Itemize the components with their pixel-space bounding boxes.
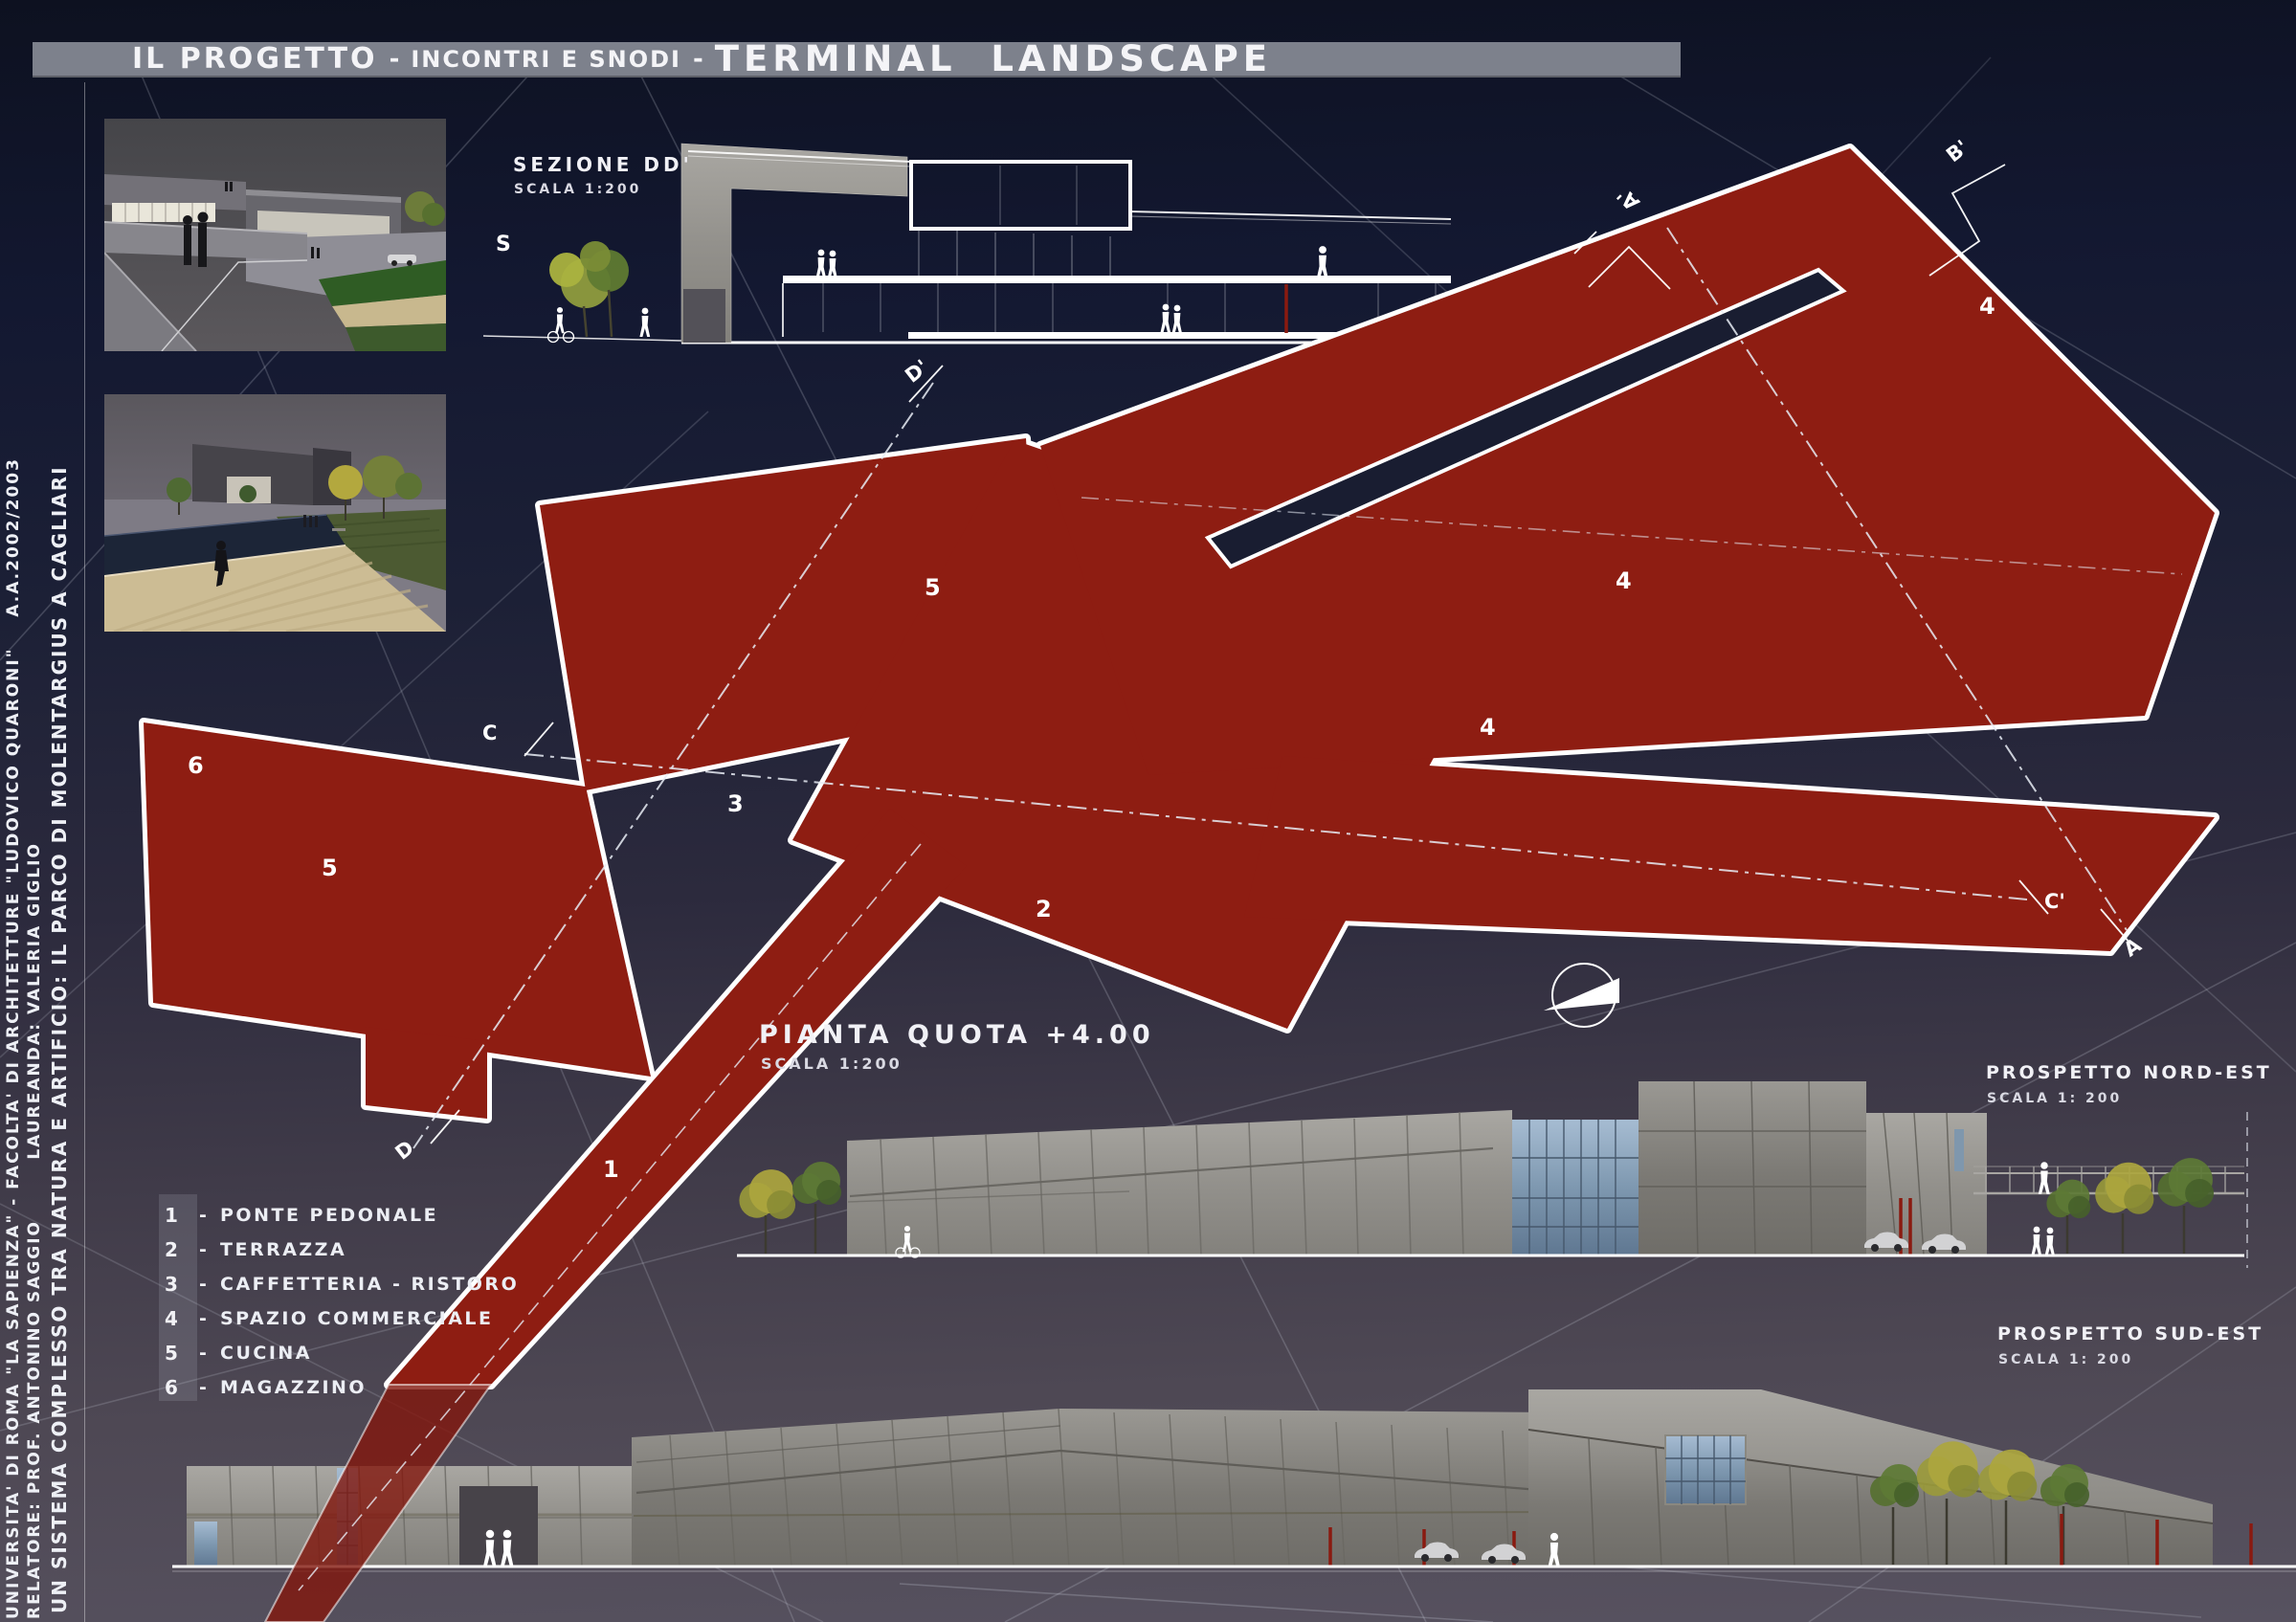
label-pianta-title: PIANTA QUOTA +4.00 <box>759 1020 1155 1050</box>
title-separator-1: - <box>390 45 400 74</box>
label-prospetto-sud-est-title: PROSPETTO SUD-EST <box>1997 1323 2263 1344</box>
plan-number-cucina-2: 5 <box>925 574 942 601</box>
legend-item-spazio-commerciale: 4 - SPAZIO COMMERCIALE <box>165 1301 519 1336</box>
plan-number-cucina-1: 5 <box>322 855 339 881</box>
north-arrow-icon <box>1544 964 1619 1027</box>
credit-thesis-title: UN SISTEMA COMPLESSO TRA NATURA E ARTIFI… <box>48 465 71 1613</box>
legend-item-magazzino: 6 - MAGAZZINO <box>165 1370 519 1405</box>
legend: 1 - PONTE PEDONALE 2 - TERRAZZA 3 - CAFF… <box>165 1198 519 1405</box>
presentation-board: IL PROGETTO - INCONTRI E SNODI - TERMINA… <box>0 0 2296 1622</box>
title-part-incontri: INCONTRI E SNODI <box>411 46 681 73</box>
title-part-progetto: IL PROGETTO <box>132 42 378 76</box>
credits-divider-line <box>84 82 85 1622</box>
legend-item-caffetteria: 3 - CAFFETTERIA - RISTORO <box>165 1267 519 1301</box>
plan-number-caffetteria: 3 <box>727 790 745 817</box>
plan-number-terrazza: 2 <box>1036 896 1053 922</box>
plan-number-magazzino: 6 <box>188 752 205 779</box>
label-prospetto-nord-est-title: PROSPETTO NORD-EST <box>1986 1062 2272 1083</box>
title-part-terminal-landscape: TERMINAL LANDSCAPE <box>715 38 1272 79</box>
plan-number-commerciale-3: 4 <box>1480 714 1497 741</box>
plan-number-commerciale-2: 4 <box>1616 567 1633 594</box>
label-prospetto-nord-est-scale: SCALA 1: 200 <box>1987 1091 2122 1106</box>
section-marker-s: S <box>496 233 511 256</box>
title-separator-2: - <box>693 45 703 74</box>
plan-number-ponte: 1 <box>603 1156 620 1183</box>
legend-item-terrazza: 2 - TERRAZZA <box>165 1233 519 1267</box>
section-marker-c: C <box>482 722 497 744</box>
credit-university: UNIVERSITA' DI ROMA "LA SAPIENZA" - FACO… <box>4 457 23 1619</box>
label-prospetto-sud-est-scale: SCALA 1: 200 <box>1998 1352 2133 1367</box>
elevation-nord-est-drawing <box>737 1081 2247 1268</box>
legend-item-ponte-pedonale: 1 - PONTE PEDONALE <box>165 1198 519 1233</box>
render-perspective-1 <box>104 119 446 351</box>
title-bar: IL PROGETTO - INCONTRI E SNODI - TERMINA… <box>33 42 1681 78</box>
section-marker-c-prime: C' <box>2044 890 2065 913</box>
label-sezione-title: SEZIONE DD' <box>513 153 693 176</box>
render-perspective-2 <box>104 394 446 632</box>
legend-item-cucina: 5 - CUCINA <box>165 1336 519 1370</box>
elevation-sud-est-drawing <box>172 1389 2296 1571</box>
label-pianta-scale: SCALA 1:200 <box>761 1055 903 1073</box>
plan-number-commerciale-1: 4 <box>1979 293 1996 320</box>
credit-relatore: RELATORE: PROF. ANTONINO SAGGIO LAUREAND… <box>25 842 44 1619</box>
label-sezione-scale: SCALA 1:200 <box>514 182 641 197</box>
